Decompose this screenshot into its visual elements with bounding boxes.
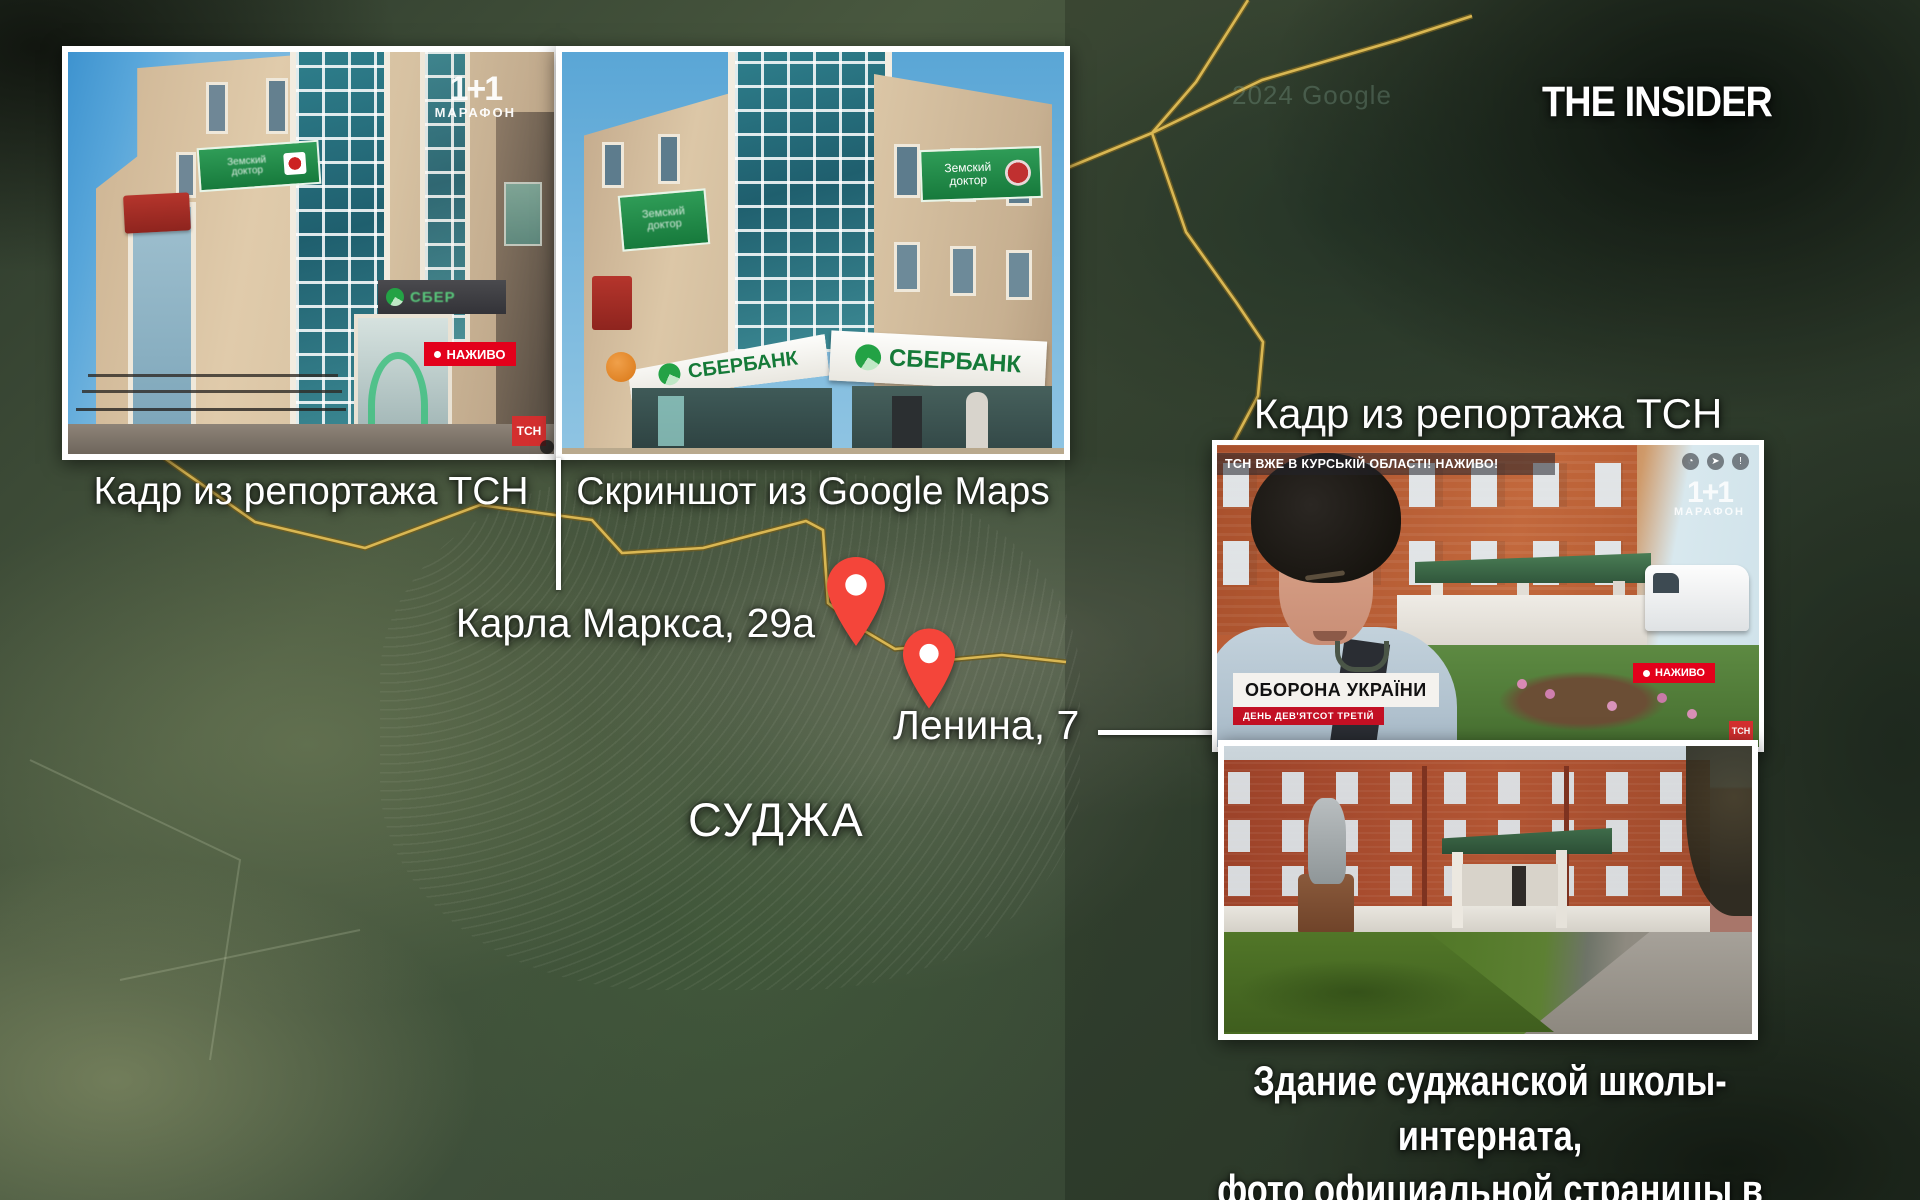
window [206, 82, 228, 134]
tsn-video-frame: ТСН ВЖЕ В КУРСЬКІЙ ОБЛАСТІ! НАЖИВО! ◔ ➤ … [1217, 445, 1759, 747]
doorway [892, 396, 922, 450]
window [894, 242, 920, 292]
railing [88, 374, 338, 377]
sber-logo-icon [386, 288, 404, 306]
van-windshield [1653, 573, 1679, 593]
share-icon: ➤ [1707, 453, 1724, 470]
flowers [1517, 679, 1527, 689]
chyron-title: ОБОРОНА УКРАЇНИ [1233, 673, 1439, 707]
sber-logo-icon [854, 344, 881, 371]
sberbank-sign-right: СБЕРБАНК [829, 330, 1047, 391]
connector-horizontal [1098, 730, 1214, 735]
mouth [1313, 631, 1347, 641]
storefront [852, 386, 1052, 454]
red-shop-sign [592, 276, 632, 330]
caption-school: Здание суджанской школы-интерната, фото … [1195, 1054, 1785, 1200]
downpipe [1422, 766, 1427, 916]
zemsky-doctor-sign: Земский доктор [919, 146, 1043, 202]
statue [1308, 798, 1346, 884]
live-dot-icon [1643, 670, 1650, 677]
caption-tsn-video: Кадр из репортажа ТСН [1212, 390, 1764, 438]
tsn-building-photo: Земский доктор СБЕР 1+1 МАРАФОН [68, 52, 554, 454]
window [176, 152, 196, 198]
zemsky-doctor-sign: Земский доктор [197, 140, 322, 192]
tall-window [128, 202, 196, 452]
inset-tsn-building: Земский доктор СБЕР 1+1 МАРАФОН [62, 46, 560, 460]
live-dot-icon [434, 351, 441, 358]
caption-gmaps: Скриншот из Google Maps [556, 470, 1070, 514]
oneplusone-watermark: 1+1 МАРАФОН [1674, 479, 1745, 518]
oneplusone-logo: 1+1 МАРАФОН [435, 74, 516, 120]
map-pin-karla-marksa-icon [826, 556, 886, 648]
info-icon: ! [1732, 453, 1749, 470]
railing [76, 408, 346, 411]
label-karla-marksa: Карла Маркса, 29а [360, 600, 815, 647]
zemsky-doctor-sign: Земский доктор [618, 188, 711, 251]
green-sign-far [504, 182, 542, 246]
pavement [562, 448, 1064, 454]
window [658, 134, 680, 184]
base-band [1224, 906, 1710, 934]
red-shop-sign [123, 192, 191, 233]
the-insider-logo: THE INSIDER [1542, 78, 1772, 127]
school-photo [1224, 746, 1752, 1034]
window [1006, 250, 1032, 300]
entrance-porch [1462, 864, 1558, 906]
label-city-sudzha: СУДЖА [688, 792, 865, 847]
storefront-glass [658, 396, 684, 446]
orange-sign-icon [606, 352, 636, 382]
chin-strap [1335, 641, 1389, 672]
caption-tsn-building: Кадр из репортажа ТСН [62, 470, 560, 514]
tsn-logo-badge: ТСН [1729, 721, 1753, 741]
school-window-row [1228, 772, 1706, 804]
sber-logo-icon [657, 362, 682, 387]
railing [82, 390, 342, 393]
glass-curtain-wall [728, 52, 892, 352]
window [602, 142, 624, 188]
player-controls: ◔ ➤ ! [1682, 453, 1749, 470]
window [266, 78, 288, 134]
person-silhouette [1512, 866, 1526, 906]
live-badge: НАЖИВО [424, 342, 516, 366]
window [894, 144, 920, 198]
ticker-bar: ТСН ВЖЕ В КУРСЬКІЙ ОБЛАСТІ! НАЖИВО! [1217, 453, 1555, 475]
inset-school-photo [1218, 740, 1758, 1040]
live-badge: НАЖИВО [1633, 663, 1715, 683]
infographic-canvas: 2024 Google THE INSIDER Земский доктор [0, 0, 1920, 1200]
google-map-watermark: 2024 Google [1232, 80, 1392, 111]
clock-icon: ◔ [1682, 453, 1699, 470]
sign-logo [283, 152, 306, 175]
window [950, 246, 976, 296]
caption-school-line2: фото официальной страницы в VK [1195, 1163, 1785, 1200]
sber-fascia: СБЕР [378, 280, 506, 314]
inset-gmaps-screenshot: Земский доктор Земский доктор СБЕРБАНК С… [556, 46, 1070, 460]
map-pin-lenina-icon [902, 628, 956, 710]
connector-vertical [556, 458, 561, 590]
sber-text: СБЕР [410, 289, 456, 306]
chyron-subtitle: ДЕНЬ ДЕВ'ЯТСОТ ТРЕТІЙ [1233, 707, 1384, 725]
label-lenina: Ленина, 7 [893, 702, 1079, 749]
camera-watermark-icon [540, 440, 554, 454]
inset-tsn-video: ТСН ВЖЕ В КУРСЬКІЙ ОБЛАСТІ! НАЖИВО! ◔ ➤ … [1212, 440, 1764, 752]
gmaps-photo: Земский доктор Земский доктор СБЕРБАНК С… [562, 52, 1064, 454]
pavement [68, 424, 554, 454]
sign-logo [1005, 159, 1032, 186]
pedestrian [966, 392, 988, 452]
caption-school-line1: Здание суджанской школы-интерната, [1195, 1054, 1785, 1163]
